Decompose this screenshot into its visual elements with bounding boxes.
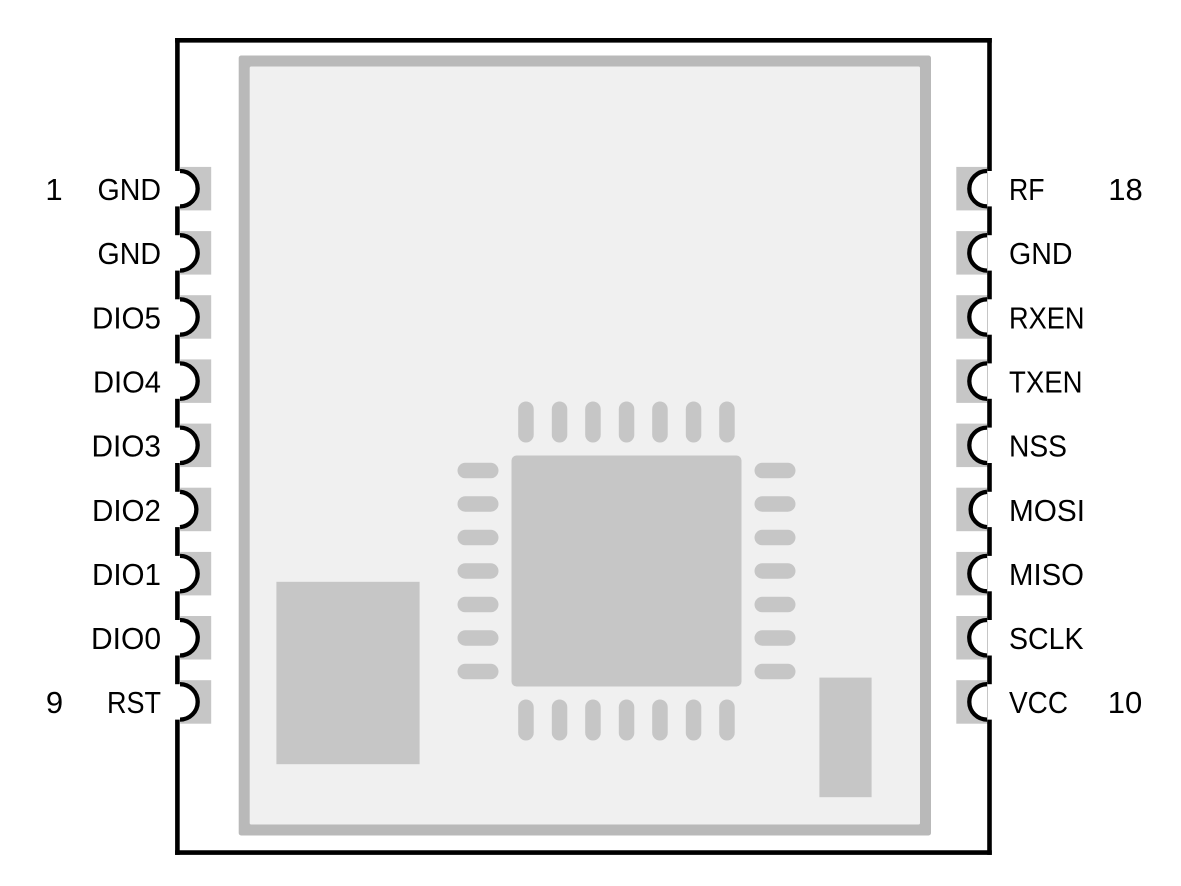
svg-text:MOSI: MOSI [1009,493,1085,528]
svg-text:NSS: NSS [1009,429,1067,464]
svg-text:DIO2: DIO2 [92,493,161,528]
svg-text:MISO: MISO [1009,557,1084,592]
svg-text:18: 18 [1108,172,1142,207]
svg-text:1: 1 [45,172,62,207]
svg-text:RXEN: RXEN [1009,300,1085,335]
svg-text:DIO1: DIO1 [92,557,161,592]
svg-text:SCLK: SCLK [1009,621,1084,656]
svg-text:DIO5: DIO5 [92,300,161,335]
svg-text:RF: RF [1009,172,1045,207]
svg-text:GND: GND [98,172,162,207]
svg-text:RST: RST [107,685,161,720]
svg-text:9: 9 [46,685,63,720]
svg-text:DIO0: DIO0 [91,621,161,656]
svg-text:GND: GND [98,236,162,271]
svg-text:DIO3: DIO3 [92,429,162,464]
svg-text:DIO4: DIO4 [93,364,161,399]
svg-text:10: 10 [1108,685,1142,720]
svg-text:GND: GND [1009,236,1073,271]
svg-text:TXEN: TXEN [1009,364,1083,399]
svg-text:VCC: VCC [1009,685,1068,720]
